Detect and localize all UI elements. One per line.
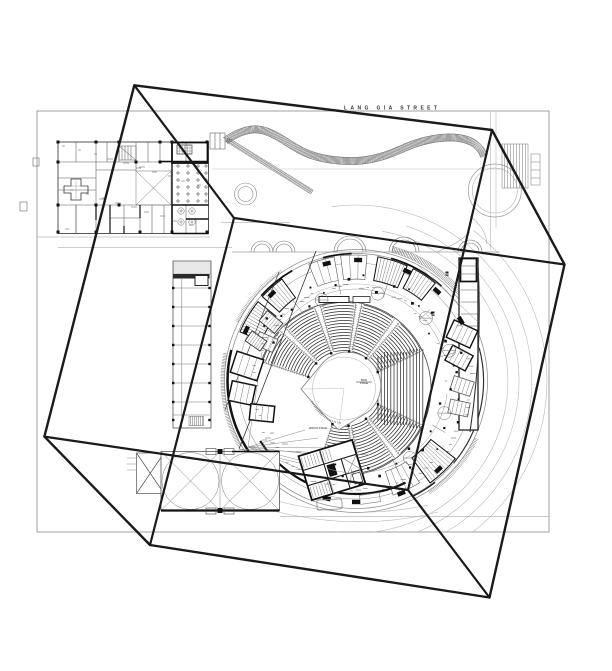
svg-text:LANG GIA STREET: LANG GIA STREET (344, 106, 440, 112)
svg-text:APRON STAGE: APRON STAGE (309, 426, 328, 430)
svg-text:STAGE: STAGE (360, 381, 369, 385)
